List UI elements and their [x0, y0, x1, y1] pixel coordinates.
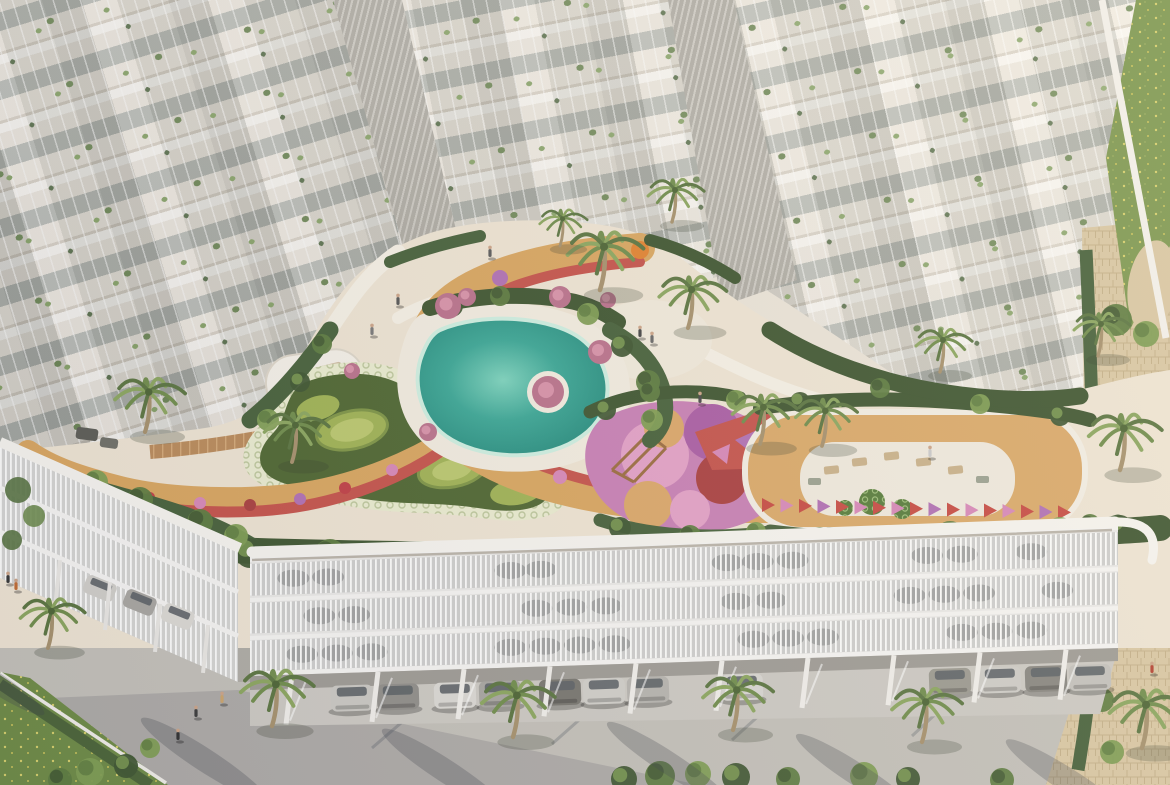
shrub-highlight [314, 336, 325, 347]
flower-bush [592, 344, 604, 356]
palm-tree [916, 329, 972, 382]
parked-car [580, 677, 629, 710]
palm-tree [115, 379, 185, 445]
shrub-highlight [292, 374, 303, 385]
palm-tree [648, 179, 704, 232]
flower-bush [538, 382, 554, 398]
shrub-highlight [972, 396, 983, 407]
shrub-highlight [78, 760, 93, 775]
shrub-highlight [613, 768, 627, 782]
flower-bush [346, 365, 354, 373]
shrub-highlight [792, 394, 803, 405]
shrub-highlight [492, 288, 503, 299]
shrub-highlight [226, 526, 239, 539]
shrub-highlight [992, 770, 1005, 783]
shrub-highlight [613, 337, 625, 349]
scene-midground [0, 0, 1170, 785]
shrub-highlight [142, 740, 153, 751]
terrace-furniture [75, 427, 98, 442]
path-dot [194, 497, 206, 509]
path-dot [492, 270, 508, 286]
shrub-highlight [724, 765, 739, 780]
parked-car [328, 684, 377, 717]
shrub-highlight [642, 384, 653, 395]
shrub-highlight [643, 411, 655, 423]
path-dot [294, 493, 306, 505]
flower-bush [461, 291, 470, 300]
path-dot [244, 499, 256, 511]
flower-bush [553, 290, 564, 301]
path-dot [339, 482, 351, 494]
swimming-pool [418, 319, 608, 456]
parked-car [374, 683, 423, 716]
shrub-highlight [1102, 742, 1115, 755]
shrub-highlight [579, 305, 591, 317]
shrub-highlight [1052, 408, 1063, 419]
shrub-highlight [116, 756, 129, 769]
parked-car [976, 666, 1025, 699]
shrub-highlight [898, 769, 911, 782]
shrub-highlight [1135, 323, 1149, 337]
aerial-render-scene [0, 0, 1170, 785]
shrub-highlight [611, 519, 623, 531]
parked-car [431, 681, 480, 714]
path-dot [386, 464, 398, 476]
shrub-highlight [872, 380, 883, 391]
flower-bush [422, 426, 431, 435]
shrub-highlight [50, 770, 63, 783]
shrub-highlight [598, 402, 609, 413]
flower-bush [440, 298, 453, 311]
parked-car [1066, 664, 1115, 697]
path-dot [553, 470, 567, 484]
shrub-highlight [778, 769, 791, 782]
